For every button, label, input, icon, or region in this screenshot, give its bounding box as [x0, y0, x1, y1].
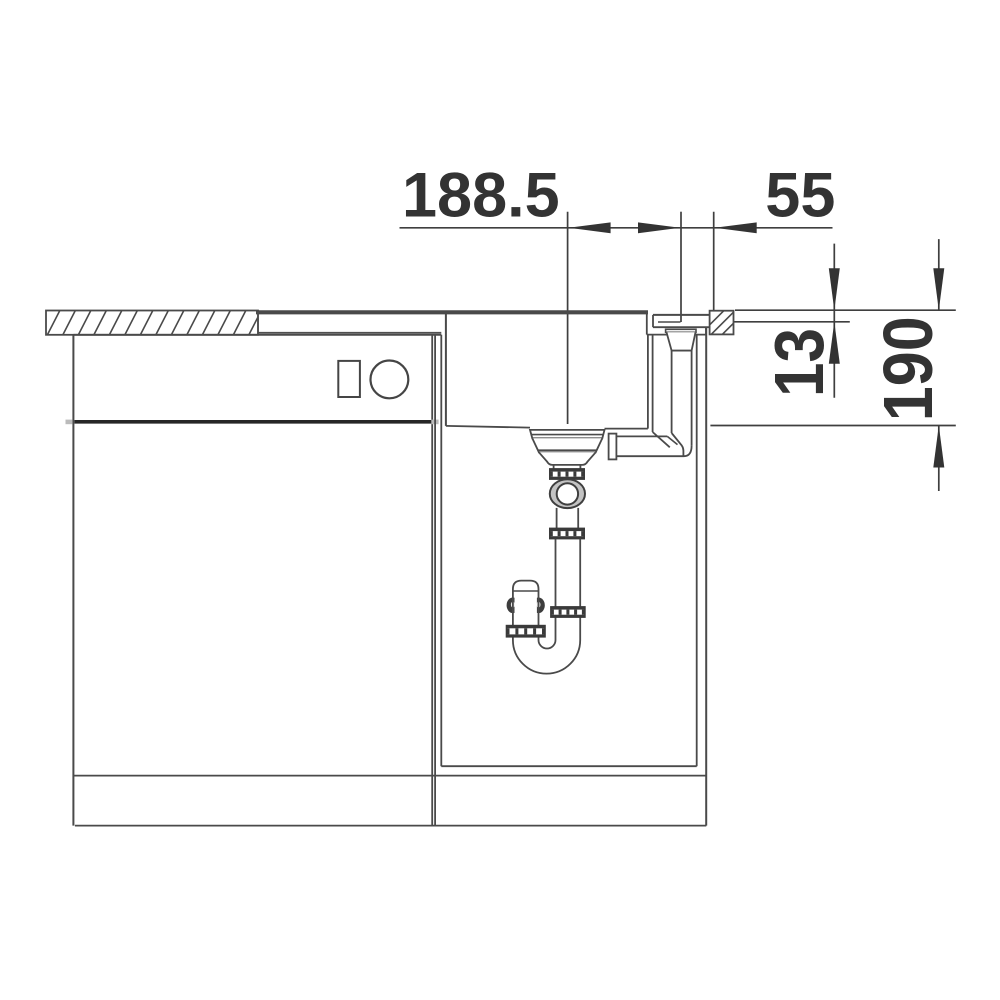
- svg-text:55: 55: [765, 161, 835, 231]
- svg-text:190: 190: [869, 316, 947, 421]
- svg-text:188.5: 188.5: [402, 161, 560, 231]
- svg-text:13: 13: [760, 328, 838, 397]
